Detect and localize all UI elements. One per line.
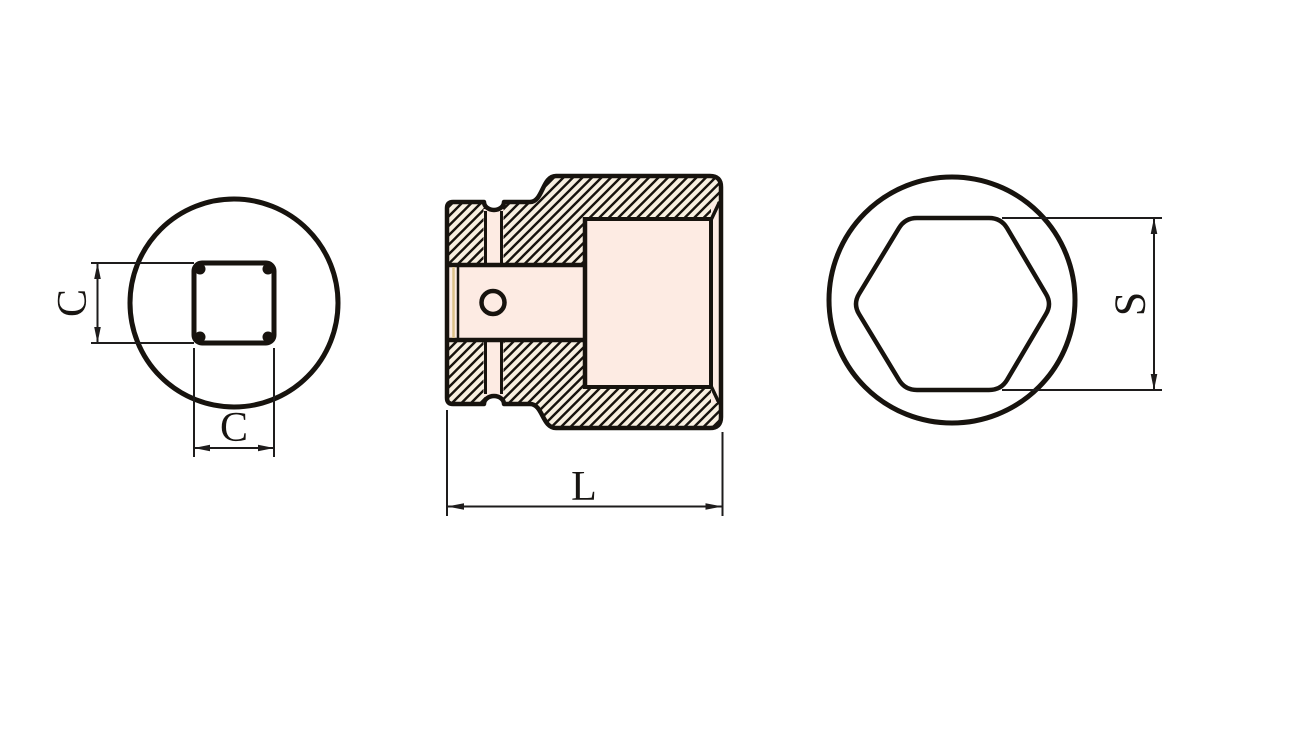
dimension-square-height: C bbox=[50, 263, 194, 343]
dimension-hex-across-flats: S bbox=[1002, 218, 1162, 390]
drawing-canvas: C C bbox=[0, 0, 1304, 744]
dim-label-square-width: C bbox=[220, 405, 248, 451]
arrowhead-down bbox=[1151, 374, 1158, 390]
arrowhead-left bbox=[194, 445, 210, 451]
section-view: L bbox=[447, 176, 723, 516]
square-corner-reliefs bbox=[195, 264, 274, 343]
arrowhead-left bbox=[447, 503, 464, 509]
square-drive-hole bbox=[194, 263, 274, 343]
arrowhead-up bbox=[94, 263, 101, 279]
dim-label-square-height: C bbox=[50, 289, 96, 317]
front-view: C C bbox=[50, 199, 338, 457]
dim-label-hex-across-flats: S bbox=[1106, 292, 1155, 316]
arrowhead-right bbox=[258, 445, 274, 451]
arrowhead-up bbox=[1151, 218, 1158, 234]
arrowhead-down bbox=[94, 327, 101, 343]
socket-outline-circle bbox=[829, 177, 1075, 423]
socket-outline-circle bbox=[130, 199, 338, 407]
hex-opening bbox=[856, 218, 1049, 390]
rear-view: S bbox=[829, 177, 1162, 423]
socket-technical-drawing: C C bbox=[0, 0, 1304, 744]
arrowhead-right bbox=[706, 503, 723, 509]
drive-hole-band bbox=[449, 263, 587, 342]
dim-label-overall-length: L bbox=[571, 464, 597, 510]
hex-cavity bbox=[585, 219, 711, 387]
